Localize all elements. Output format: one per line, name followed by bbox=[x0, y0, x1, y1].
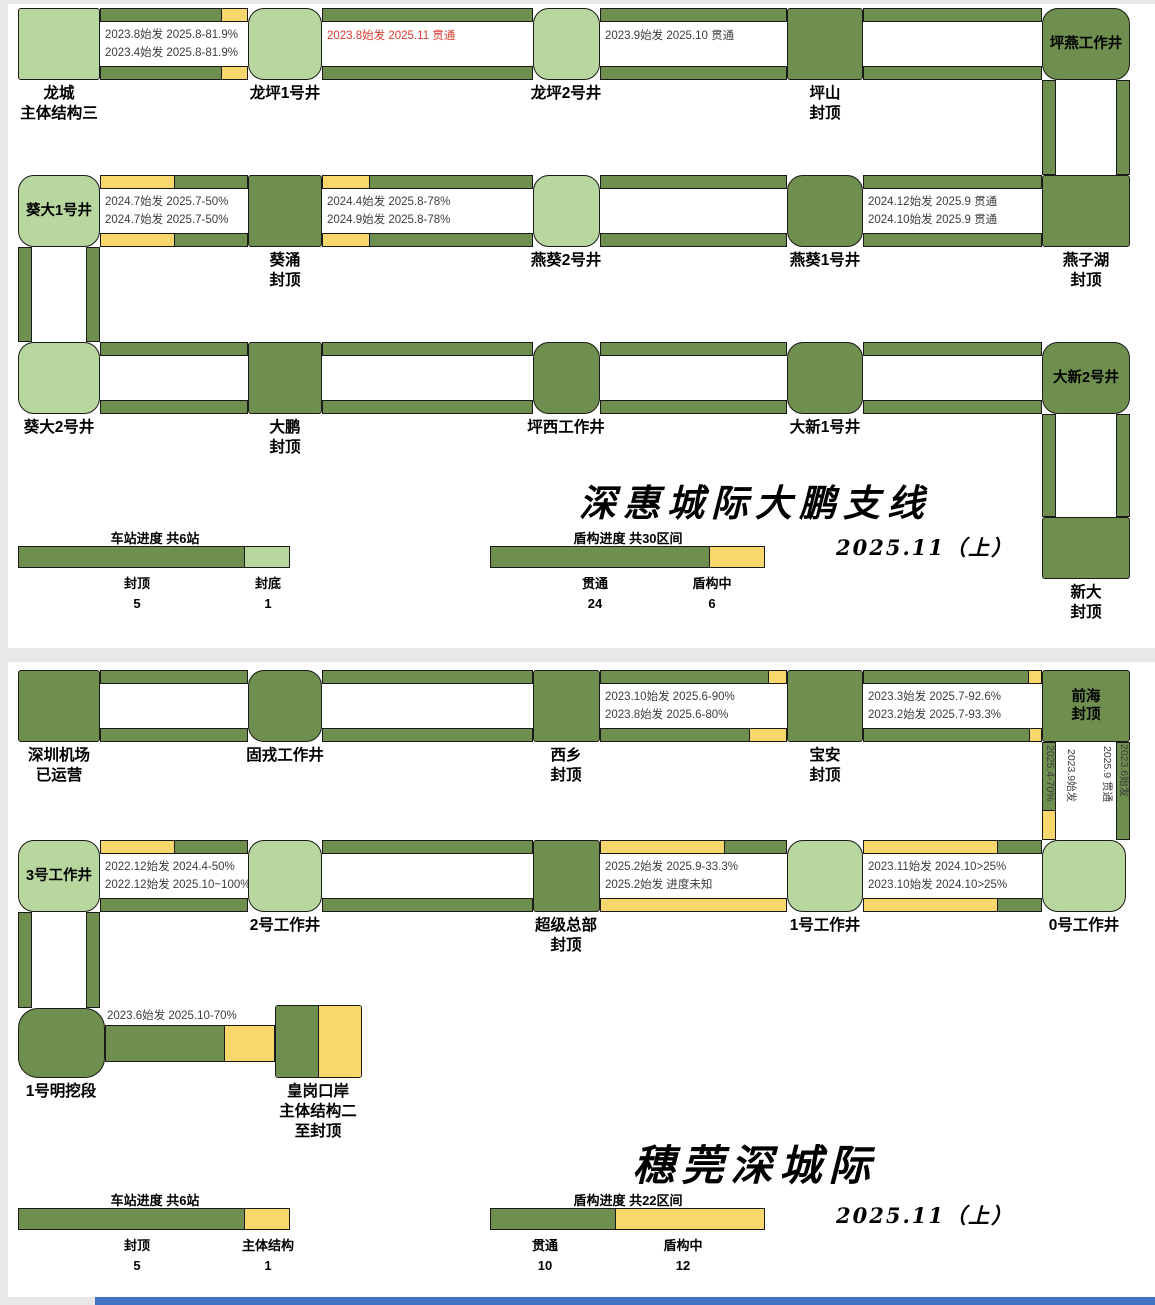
shield-legend-label-through: 贯通 24 bbox=[535, 574, 655, 613]
station-label-w1: 1号工作井 bbox=[750, 916, 900, 936]
station-yanzihu bbox=[1042, 175, 1130, 247]
tunnel-annotation-vertical: 2025.9 贯通 bbox=[1102, 746, 1113, 802]
tunnel-pingshan-pingyan bbox=[863, 8, 1042, 80]
station-label-gurong: 固戎工作井 bbox=[210, 746, 360, 766]
tunnel-annotation-vertical: 2023.9始发 bbox=[1066, 749, 1077, 802]
station-jichang bbox=[18, 670, 100, 742]
tunnel-annotation: 2024.12始发 2025.9 贯通 bbox=[868, 196, 1040, 208]
progress-diagram: 龙城 主体结构三 2023.8始发 2025.8-81.9% 2023.4始发 … bbox=[0, 0, 1155, 1305]
tunnel-annotation: 2023.2始发 2025.7-93.3% bbox=[868, 709, 1040, 721]
station-w1 bbox=[787, 840, 863, 912]
station-legend-bar bbox=[18, 1208, 290, 1230]
station-legend-label-structure: 主体结构 1 bbox=[208, 1236, 328, 1275]
tunnel-kuida1-kuichong: 2024.7始发 2025.7-50% 2024.7始发 2025.7-50% bbox=[100, 175, 248, 247]
station-longping2 bbox=[533, 8, 600, 80]
station-w2 bbox=[248, 840, 322, 912]
tunnel-annotation: 2023.10始发 2024.10>25% bbox=[868, 879, 1040, 891]
station-huanggang bbox=[275, 1005, 362, 1078]
station-label-kuichong: 葵涌 封顶 bbox=[210, 251, 360, 291]
station-w3: 3号工作井 bbox=[18, 840, 100, 912]
tunnel-chaoji-w1: 2025.2始发 2025.9-33.3% 2025.2始发 进度未知 bbox=[600, 840, 787, 912]
station-xinda bbox=[1042, 517, 1130, 579]
huanggang-pending-half bbox=[318, 1006, 362, 1077]
tunnel-longping2-pingshan: 2023.9始发 2025.10 贯通 bbox=[600, 8, 787, 80]
tunnel-xixiang-baoan: 2023.10始发 2025.6-90% 2023.8始发 2025.6-80% bbox=[600, 670, 787, 742]
station-legend-title: 车站进度 共6站 bbox=[35, 528, 275, 547]
tunnel-w3-w2: 2022.12始发 2024.4-50% 2022.12始发 2025.10~1… bbox=[100, 840, 248, 912]
tunnel-longping1-longping2: 2023.8始发 2025.11 贯通 bbox=[322, 8, 533, 80]
vertical-tunnel-w3-mingwa bbox=[18, 912, 100, 1008]
shield-legend-title: 盾构进度 共22区间 bbox=[508, 1190, 748, 1209]
tunnel-annotation: 2022.12始发 2025.10~100% bbox=[105, 879, 246, 891]
station-longping1 bbox=[248, 8, 322, 80]
station-label-dapeng: 大鹏 封顶 bbox=[210, 418, 360, 458]
station-legend-label-capped: 封顶 5 bbox=[77, 1236, 197, 1275]
station-baoan bbox=[787, 670, 863, 742]
station-yankui2 bbox=[533, 175, 600, 247]
tunnel-pingxi-daxin1 bbox=[600, 342, 787, 414]
station-legend-label-capped: 封顶 5 bbox=[77, 574, 197, 613]
tunnel-dapeng-pingxi bbox=[322, 342, 533, 414]
tunnel-yankui1-yanzihu: 2024.12始发 2025.9 贯通 2024.10始发 2025.9 贯通 bbox=[863, 175, 1042, 247]
tunnel-annotation: 2024.9始发 2025.8-78% bbox=[327, 214, 531, 226]
tunnel-annotation: 2023.8始发 2025.6-80% bbox=[605, 709, 785, 721]
station-xixiang bbox=[533, 670, 600, 742]
station-chaoji bbox=[533, 840, 600, 912]
tunnel-kuida2-dapeng bbox=[100, 342, 248, 414]
station-mingwa bbox=[18, 1008, 105, 1078]
tunnel-annotation: 2023.8始发 2025.8-81.9% bbox=[105, 29, 246, 41]
station-label-pingxi: 坪西工作井 bbox=[491, 418, 641, 438]
station-w0 bbox=[1042, 840, 1126, 912]
tunnel-mingwa-huanggang bbox=[105, 1025, 275, 1062]
station-qianhai: 前海 封顶 bbox=[1042, 670, 1130, 742]
shield-legend-label-boring: 盾构中 6 bbox=[652, 574, 772, 613]
huanggang-done-half bbox=[276, 1006, 319, 1077]
station-label-baoan: 宝安 封顶 bbox=[750, 746, 900, 786]
tunnel-annotation-breakthrough: 2023.8始发 2025.11 贯通 bbox=[327, 30, 531, 42]
station-label-longcheng: 龙城 主体结构三 bbox=[0, 84, 134, 124]
station-pingxi bbox=[533, 342, 600, 414]
station-kuichong bbox=[248, 175, 322, 247]
tunnel-annotation: 2023.3始发 2025.7-92.6% bbox=[868, 691, 1040, 703]
station-label-longping1: 龙坪1号井 bbox=[210, 84, 360, 104]
station-label-w2: 2号工作井 bbox=[210, 916, 360, 936]
tunnel-annotation: 2024.4始发 2025.8-78% bbox=[327, 196, 531, 208]
station-label-xinda: 新大 封顶 bbox=[1011, 583, 1155, 623]
shield-legend-title: 盾构进度 共30区间 bbox=[508, 528, 748, 547]
shield-legend-bar bbox=[490, 546, 765, 568]
station-pingshan bbox=[787, 8, 863, 80]
station-legend-title: 车站进度 共6站 bbox=[35, 1190, 275, 1209]
line-date-suiwanshen: 2025.11（上） bbox=[795, 1200, 1055, 1230]
station-label-pingshan: 坪山 封顶 bbox=[750, 84, 900, 124]
station-dapeng bbox=[248, 342, 322, 414]
line-title-suiwanshen: 穗莞深城际 bbox=[480, 1132, 1030, 1193]
line-date-dapeng: 2025.11（上） bbox=[795, 532, 1055, 562]
station-label-jichang: 深圳机场 已运营 bbox=[0, 746, 134, 786]
tunnel-annotation: 2024.10始发 2025.9 贯通 bbox=[868, 214, 1040, 226]
tunnel-daxin1-daxin2 bbox=[863, 342, 1042, 414]
tunnel-annotation: 2024.7始发 2025.7-50% bbox=[105, 196, 246, 208]
tunnel-yankui2-yankui1 bbox=[600, 175, 787, 247]
tunnel-w1-w0: 2023.11始发 2024.10>25% 2023.10始发 2024.10>… bbox=[863, 840, 1042, 912]
tunnel-kuichong-yankui2: 2024.4始发 2025.8-78% 2024.9始发 2025.8-78% bbox=[322, 175, 533, 247]
station-label-chaoji: 超级总部 封顶 bbox=[491, 916, 641, 956]
tunnel-w2-chaoji bbox=[322, 840, 533, 912]
tunnel-annotation: 2022.12始发 2024.4-50% bbox=[105, 861, 246, 873]
station-legend-bar bbox=[18, 546, 290, 568]
station-gurong bbox=[248, 670, 322, 742]
tunnel-annotation: 2023.11始发 2024.10>25% bbox=[868, 861, 1040, 873]
station-pingyan: 坪燕工作井 bbox=[1042, 8, 1130, 80]
bottom-taskbar-strip bbox=[95, 1297, 1155, 1305]
tunnel-annotation: 2023.9始发 2025.10 贯通 bbox=[605, 30, 785, 42]
tunnel-annotation: 2025.2始发 进度未知 bbox=[605, 879, 785, 891]
station-legend-label-base: 封底 1 bbox=[208, 574, 328, 613]
station-label-w0: 0号工作井 bbox=[1009, 916, 1155, 936]
vertical-tunnel-kuida1-kuida2 bbox=[18, 247, 100, 342]
line-title-dapeng: 深惠城际大鹏支线 bbox=[480, 473, 1030, 527]
tunnel-annotation-vertical: 2025.4-70% bbox=[1045, 745, 1056, 802]
station-daxin2: 大新2号井 bbox=[1042, 342, 1130, 414]
station-label-yankui2: 燕葵2号井 bbox=[491, 251, 641, 271]
shield-legend-bar bbox=[490, 1208, 765, 1230]
station-label-yankui1: 燕葵1号井 bbox=[750, 251, 900, 271]
shield-legend-label-boring: 盾构中 12 bbox=[623, 1236, 743, 1275]
tunnel-longcheng-longping1: 2023.8始发 2025.8-81.9% 2023.4始发 2025.8-81… bbox=[100, 8, 248, 80]
station-kuida1: 葵大1号井 bbox=[18, 175, 100, 247]
tunnel-annotation-vertical: 2023.6始发 bbox=[1119, 744, 1130, 797]
tunnel-annotation: 2025.2始发 2025.9-33.3% bbox=[605, 861, 785, 873]
shield-legend-label-through: 贯通 10 bbox=[485, 1236, 605, 1275]
vertical-tunnel-pingyan-yanzihu bbox=[1042, 80, 1130, 175]
tunnel-annotation: 2023.6始发 2025.10-70% bbox=[107, 1007, 237, 1023]
station-daxin1 bbox=[787, 342, 863, 414]
station-label-xixiang: 西乡 封顶 bbox=[491, 746, 641, 786]
tunnel-annotation: 2024.7始发 2025.7-50% bbox=[105, 214, 246, 226]
station-longcheng bbox=[18, 8, 100, 80]
station-yankui1 bbox=[787, 175, 863, 247]
station-label-daxin1: 大新1号井 bbox=[750, 418, 900, 438]
station-label-huanggang: 皇岗口岸 主体结构二 至封顶 bbox=[243, 1082, 393, 1142]
station-label-mingwa: 1号明挖段 bbox=[0, 1082, 136, 1102]
tunnel-gurong-xixiang bbox=[322, 670, 533, 742]
station-kuida2 bbox=[18, 342, 100, 414]
station-label-kuida2: 葵大2号井 bbox=[0, 418, 134, 438]
vertical-tunnel-daxin2-xinda bbox=[1042, 414, 1130, 517]
tunnel-jichang-gurong bbox=[100, 670, 248, 742]
station-label-longping2: 龙坪2号井 bbox=[491, 84, 641, 104]
station-label-yanzihu: 燕子湖 封顶 bbox=[1011, 251, 1155, 291]
tunnel-annotation: 2023.4始发 2025.8-81.9% bbox=[105, 47, 246, 59]
tunnel-baoan-qianhai: 2023.3始发 2025.7-92.6% 2023.2始发 2025.7-93… bbox=[863, 670, 1042, 742]
tunnel-annotation: 2023.10始发 2025.6-90% bbox=[605, 691, 785, 703]
